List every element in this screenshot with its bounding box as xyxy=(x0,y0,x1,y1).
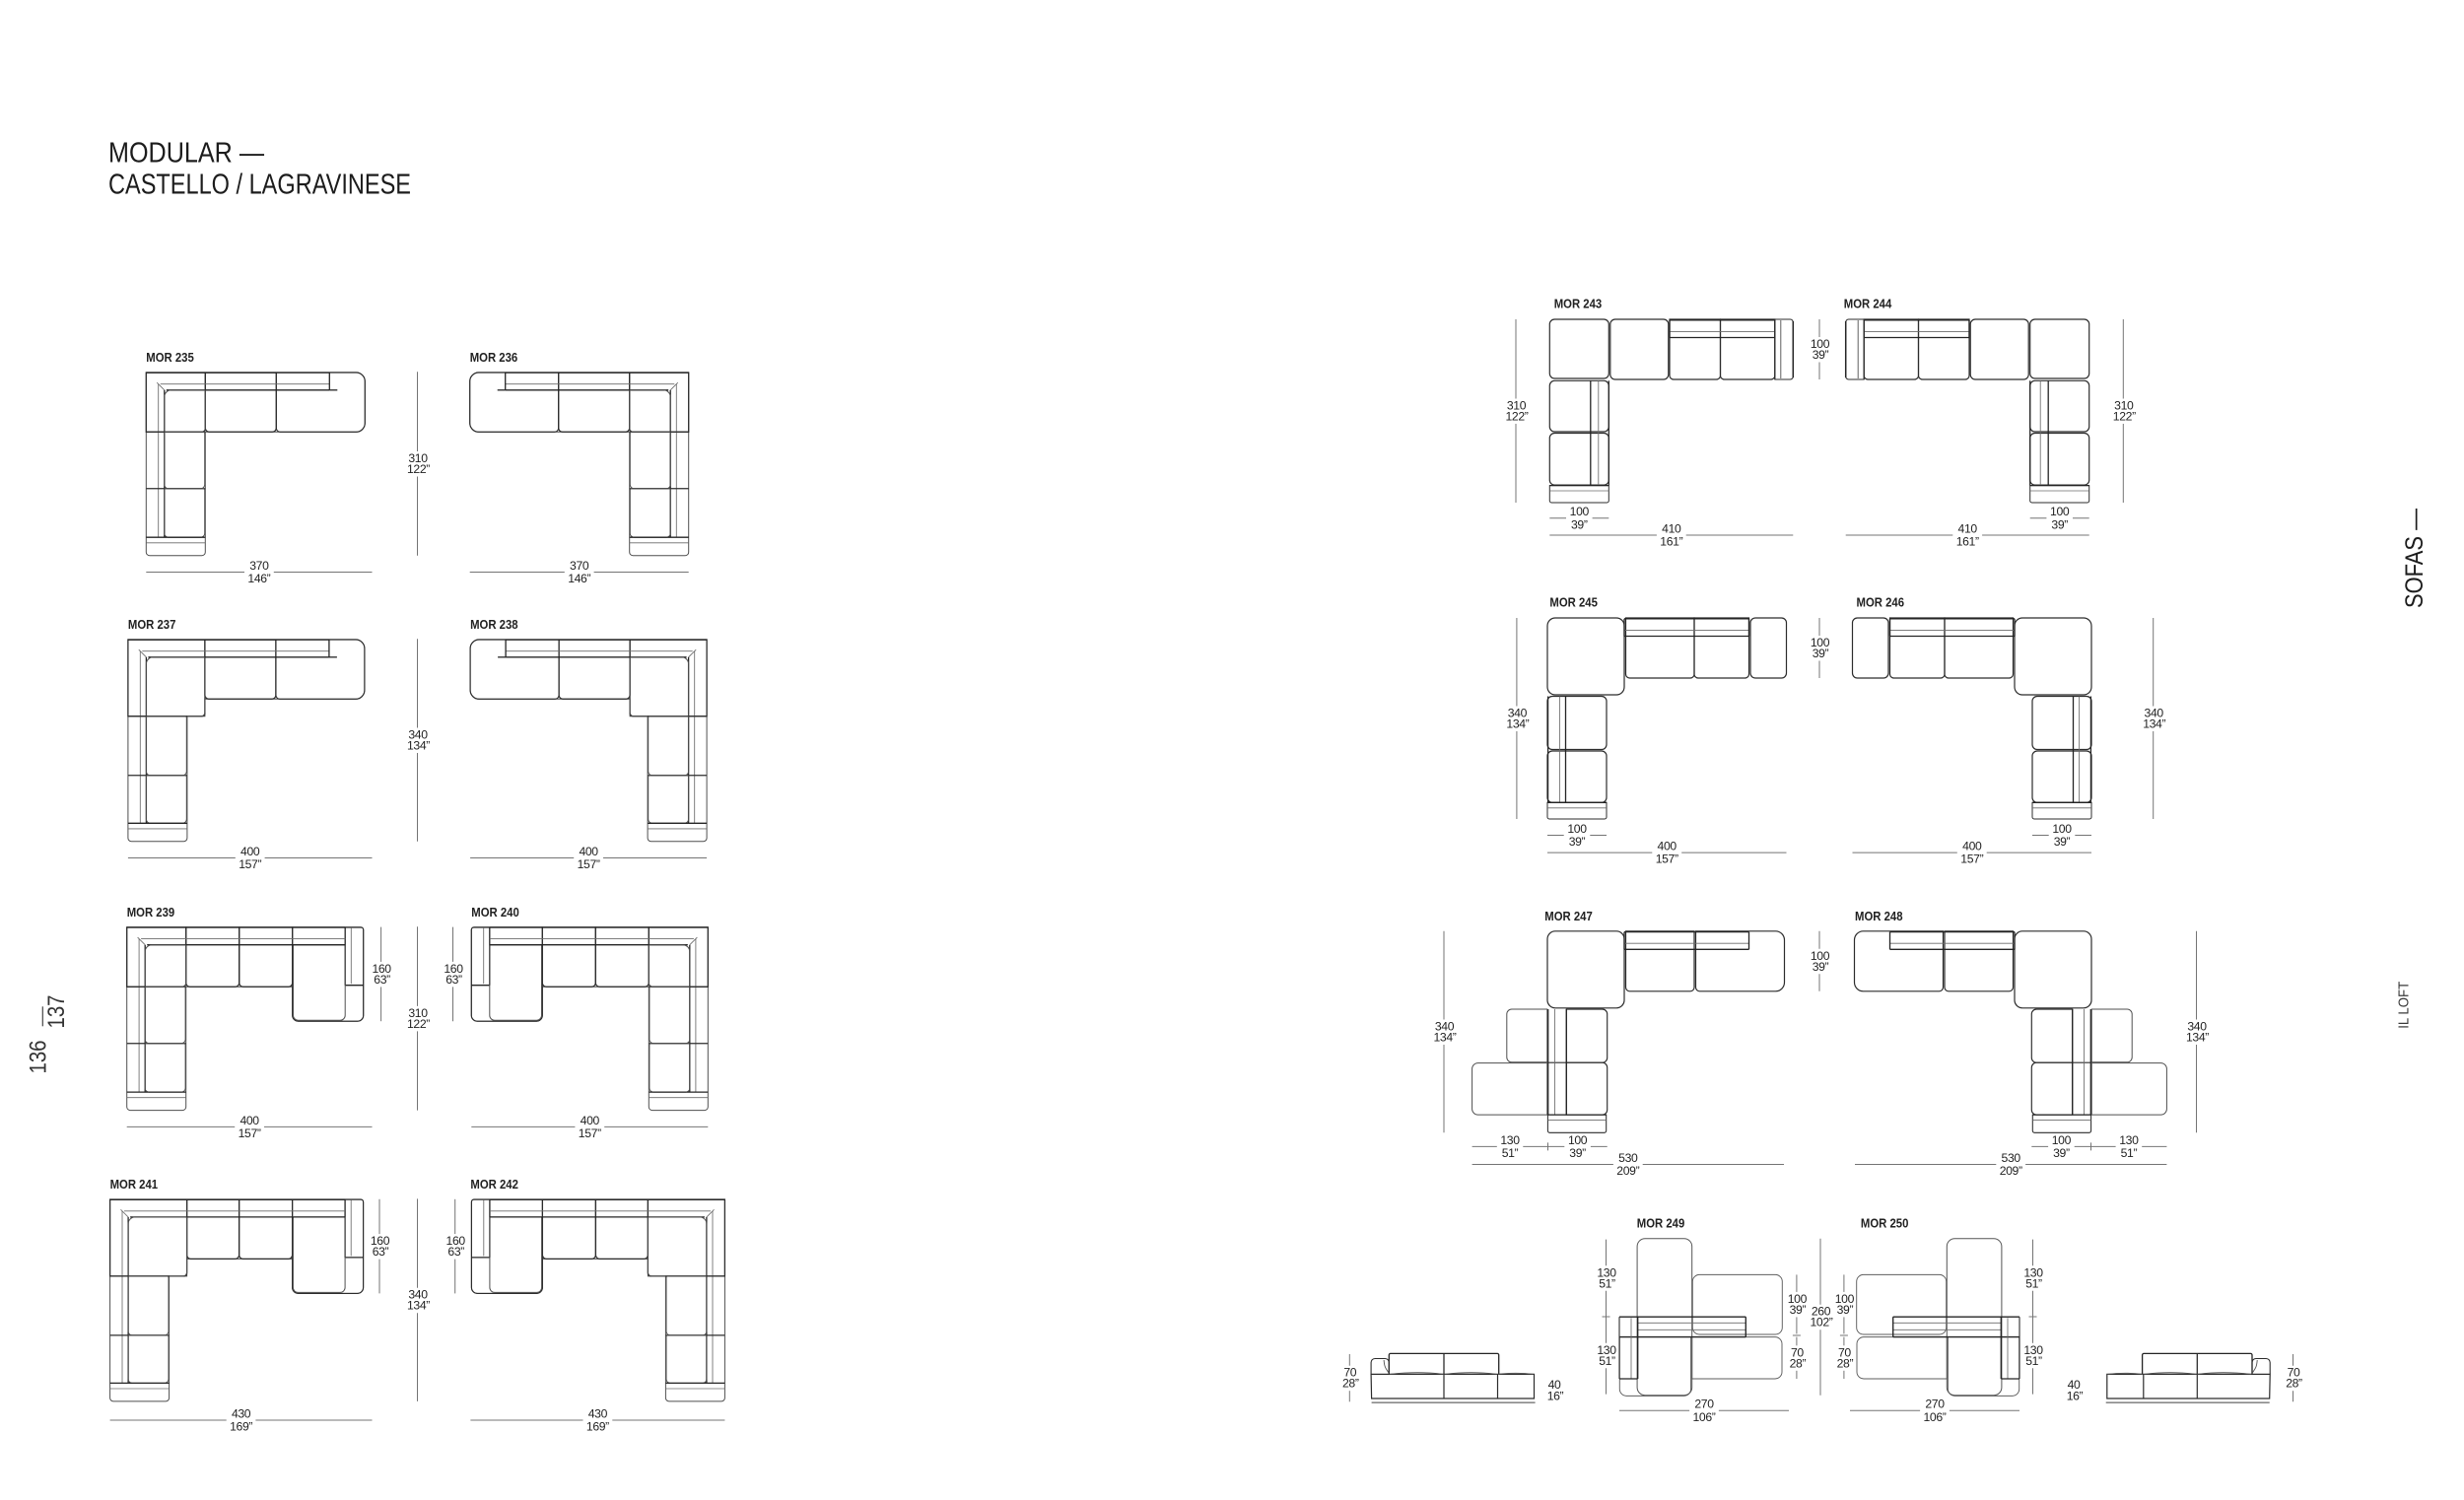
svg-text:100: 100 xyxy=(2050,505,2070,518)
svg-text:430: 430 xyxy=(232,1406,251,1420)
svg-text:39”: 39” xyxy=(1571,517,1588,531)
svg-text:28”: 28” xyxy=(2286,1377,2302,1391)
svg-text:MOR 249: MOR 249 xyxy=(1637,1216,1685,1231)
svg-text:146”: 146” xyxy=(568,572,590,585)
svg-text:100: 100 xyxy=(1568,1133,1588,1147)
svg-text:430: 430 xyxy=(588,1406,608,1420)
svg-text:51”: 51” xyxy=(1502,1146,1519,1160)
svg-text:146”: 146” xyxy=(247,572,270,585)
svg-text:122”: 122” xyxy=(407,462,430,476)
svg-text:MOR 238: MOR 238 xyxy=(470,617,517,632)
svg-text:136: 136 xyxy=(26,1041,52,1074)
svg-text:MOR 241: MOR 241 xyxy=(110,1177,159,1192)
svg-text:39”: 39” xyxy=(1837,1303,1854,1317)
svg-text:530: 530 xyxy=(1618,1151,1638,1165)
svg-text:39”: 39” xyxy=(1569,1146,1586,1160)
svg-text:161”: 161” xyxy=(1660,535,1682,549)
svg-text:39”: 39” xyxy=(1569,835,1586,849)
svg-text:39”: 39” xyxy=(2053,1146,2070,1160)
svg-text:134”: 134” xyxy=(2186,1031,2209,1045)
svg-text:209”: 209” xyxy=(2000,1164,2022,1178)
svg-text:MOR 237: MOR 237 xyxy=(128,617,176,632)
svg-text:63”: 63” xyxy=(445,973,462,987)
svg-text:410: 410 xyxy=(1958,521,1978,535)
svg-text:130: 130 xyxy=(2119,1133,2139,1147)
svg-text:400: 400 xyxy=(1962,840,1982,853)
svg-text:MOR 246: MOR 246 xyxy=(1857,595,1905,610)
svg-text:MOR 244: MOR 244 xyxy=(1844,297,1892,311)
svg-text:157”: 157” xyxy=(239,857,261,871)
svg-text:134”: 134” xyxy=(1434,1031,1457,1045)
svg-text:MOR 245: MOR 245 xyxy=(1549,595,1598,610)
svg-text:SOFAS —: SOFAS — xyxy=(2401,509,2429,608)
svg-text:100: 100 xyxy=(2052,1133,2072,1147)
svg-text:51”: 51” xyxy=(1599,1354,1615,1368)
svg-text:39”: 39” xyxy=(1813,960,1829,974)
svg-text:134”: 134” xyxy=(1506,717,1529,731)
svg-text:370: 370 xyxy=(570,559,589,573)
svg-text:122”: 122” xyxy=(1506,410,1529,424)
svg-text:51”: 51” xyxy=(1599,1276,1615,1290)
svg-text:MOR 242: MOR 242 xyxy=(470,1177,518,1192)
svg-text:270: 270 xyxy=(1694,1398,1714,1411)
svg-text:400: 400 xyxy=(579,845,598,858)
svg-text:122”: 122” xyxy=(407,1017,430,1031)
svg-text:157”: 157” xyxy=(1656,852,1678,866)
svg-text:39”: 39” xyxy=(2051,517,2068,531)
svg-text:157”: 157” xyxy=(239,1126,261,1140)
svg-text:530: 530 xyxy=(2002,1151,2021,1165)
svg-text:39”: 39” xyxy=(1813,348,1829,362)
svg-text:370: 370 xyxy=(249,559,269,573)
svg-text:28”: 28” xyxy=(1342,1377,1359,1391)
svg-text:MODULAR —: MODULAR — xyxy=(108,138,264,170)
svg-text:410: 410 xyxy=(1662,521,1681,535)
svg-text:400: 400 xyxy=(240,845,260,858)
svg-text:39”: 39” xyxy=(1813,647,1829,660)
svg-text:MOR 235: MOR 235 xyxy=(146,350,194,365)
svg-text:137: 137 xyxy=(43,995,70,1029)
svg-text:100: 100 xyxy=(2052,822,2072,836)
svg-text:CASTELLO / LAGRAVINESE: CASTELLO / LAGRAVINESE xyxy=(108,170,411,201)
svg-text:63”: 63” xyxy=(447,1245,464,1259)
svg-text:MOR 248: MOR 248 xyxy=(1855,909,1903,923)
svg-text:270: 270 xyxy=(1925,1398,1945,1411)
svg-text:400: 400 xyxy=(1658,840,1677,853)
svg-text:102”: 102” xyxy=(1811,1316,1833,1330)
svg-text:MOR 240: MOR 240 xyxy=(471,905,519,920)
svg-text:134”: 134” xyxy=(2143,717,2165,731)
svg-text:51”: 51” xyxy=(2025,1276,2042,1290)
svg-text:39”: 39” xyxy=(2054,835,2071,849)
svg-text:122”: 122” xyxy=(2113,410,2136,424)
svg-text:400: 400 xyxy=(240,1114,259,1127)
svg-text:100: 100 xyxy=(1567,822,1587,836)
svg-text:134”: 134” xyxy=(407,739,430,753)
svg-text:106”: 106” xyxy=(1924,1410,1947,1424)
svg-text:16”: 16” xyxy=(1547,1390,1564,1403)
svg-text:51”: 51” xyxy=(2121,1146,2138,1160)
svg-text:106”: 106” xyxy=(1693,1410,1716,1424)
svg-text:MOR 236: MOR 236 xyxy=(470,350,518,365)
svg-text:161”: 161” xyxy=(1956,535,1979,549)
svg-text:MOR 239: MOR 239 xyxy=(127,905,175,920)
svg-text:157”: 157” xyxy=(1960,852,1983,866)
svg-text:MOR 243: MOR 243 xyxy=(1554,297,1603,311)
svg-text:157”: 157” xyxy=(579,1126,601,1140)
svg-text:MOR 247: MOR 247 xyxy=(1544,909,1593,923)
svg-text:169”: 169” xyxy=(586,1420,609,1434)
svg-text:400: 400 xyxy=(581,1114,600,1127)
svg-text:134”: 134” xyxy=(407,1299,430,1313)
svg-text:IL LOFT: IL LOFT xyxy=(2396,982,2413,1029)
svg-text:28”: 28” xyxy=(1837,1356,1854,1370)
svg-text:39”: 39” xyxy=(1790,1303,1807,1317)
svg-text:MOR 250: MOR 250 xyxy=(1861,1216,1909,1231)
svg-text:169”: 169” xyxy=(230,1420,252,1434)
svg-text:130: 130 xyxy=(1500,1133,1520,1147)
svg-text:16”: 16” xyxy=(2067,1390,2084,1403)
svg-text:209”: 209” xyxy=(1616,1164,1639,1178)
svg-text:157”: 157” xyxy=(578,857,600,871)
svg-text:100: 100 xyxy=(1570,505,1590,518)
svg-text:51”: 51” xyxy=(2025,1354,2042,1368)
svg-text:63”: 63” xyxy=(374,973,390,987)
svg-text:63”: 63” xyxy=(373,1245,389,1259)
svg-text:28”: 28” xyxy=(1790,1356,1807,1370)
